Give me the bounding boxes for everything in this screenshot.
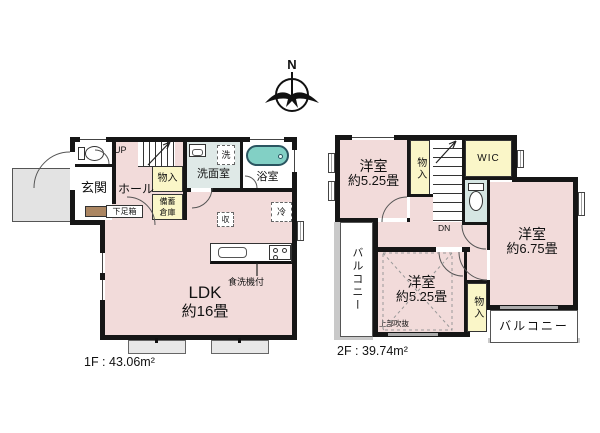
door-arcs-overlay [0, 0, 600, 433]
floor-plan-canvas: N 物入 備蓄 倉庫 洗 冷 収 [0, 0, 600, 433]
